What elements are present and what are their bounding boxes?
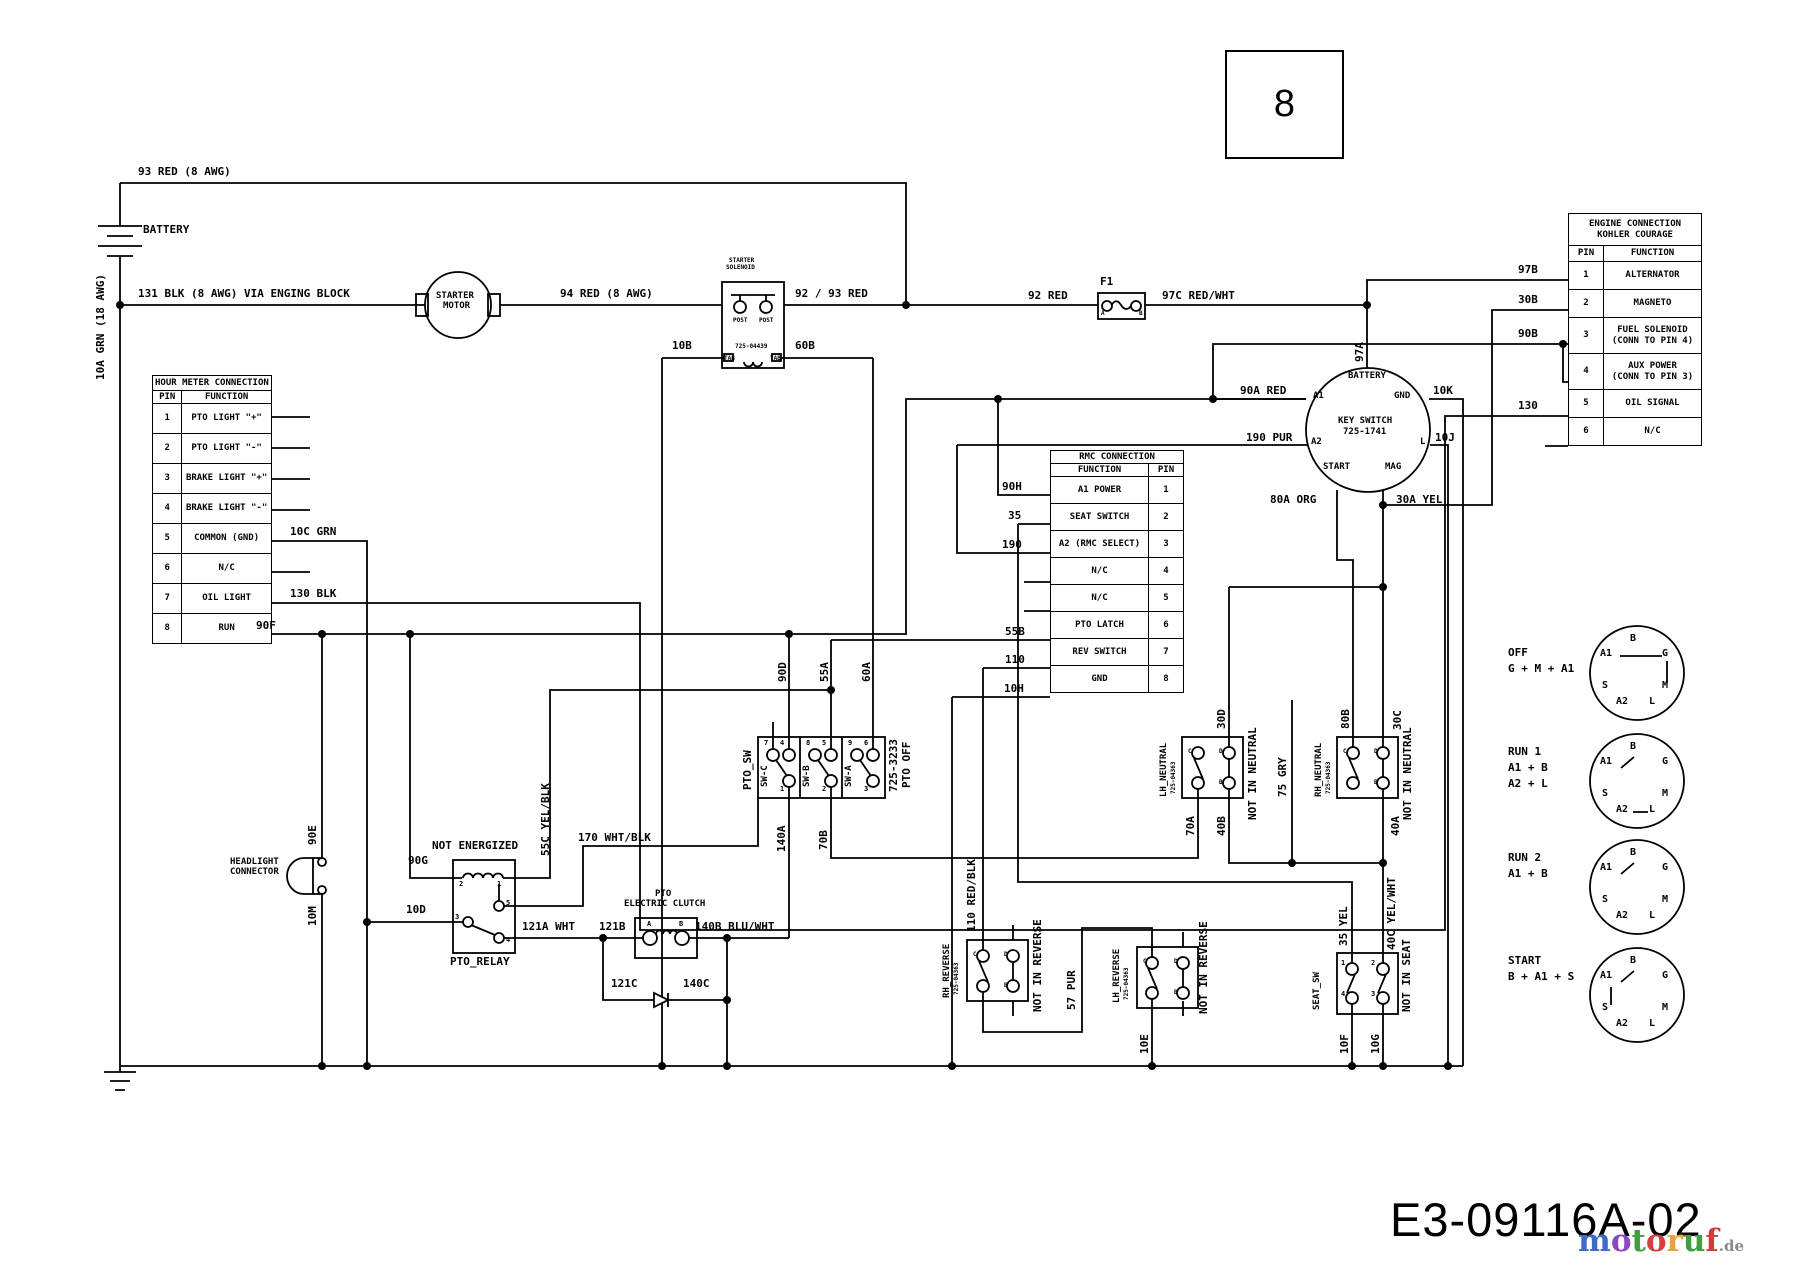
- wire-label: 10F: [1339, 1034, 1350, 1054]
- page-number-box: 8: [1225, 50, 1344, 159]
- wire-label: TAB: [724, 356, 735, 362]
- wire-label: 10K: [1433, 385, 1453, 396]
- table-title-row: HOUR METER CONNECTION: [153, 376, 272, 391]
- wire-label: POST: [759, 318, 773, 324]
- wire-label: 10M: [307, 906, 318, 926]
- table-row: 4AUX POWER(CONN TO PIN 3): [1569, 354, 1702, 390]
- wire-label: 4: [1341, 991, 1345, 998]
- wire-label: PTO OFF: [901, 742, 912, 788]
- wire-label: 8: [806, 740, 810, 747]
- wire-label: B: [1004, 983, 1008, 989]
- wire-label: BATTERY: [1348, 372, 1386, 381]
- table-row: 1PTO LIGHT "+": [153, 404, 272, 434]
- wire-label: NOT ENERGIZED: [432, 840, 518, 851]
- table-header-row: FUNCTIONPIN: [1051, 464, 1184, 477]
- wire-label: NOT IN NEUTRAL: [1247, 727, 1258, 820]
- wire-label: 190 PUR: [1246, 432, 1292, 443]
- wire-label: 5: [506, 900, 510, 907]
- key-position-terminal: S: [1602, 895, 1608, 905]
- table-row: 2MAGNETO: [1569, 290, 1702, 318]
- wire-label: 90F: [256, 620, 276, 631]
- wire-label: 92 / 93 RED: [795, 288, 868, 299]
- table-row: 5COMMON (GND): [153, 524, 272, 554]
- key-position-terminal: L: [1649, 911, 1655, 921]
- key-position-terminal: M: [1662, 1003, 1668, 1013]
- key-position-terminal: A2: [1616, 911, 1628, 921]
- wire-label: 10E: [1139, 1034, 1150, 1054]
- table-row: 1ALTERNATOR: [1569, 262, 1702, 290]
- key-position-terminal: B: [1630, 634, 1636, 644]
- wire-label: A: [1101, 311, 1105, 317]
- wire-label: 55B: [1005, 626, 1025, 637]
- wire-label: NOT IN NEUTRAL: [1402, 727, 1413, 820]
- wire-label: 131 BLK (8 AWG) VIA ENGING BLOCK: [138, 288, 350, 299]
- wire-label: 190: [1002, 539, 1022, 550]
- wire-label: MAG: [1385, 463, 1401, 472]
- wire-label: 4: [506, 937, 510, 944]
- wire-label: D: [1374, 749, 1378, 755]
- table-row: A2 (RMC SELECT)3: [1051, 531, 1184, 558]
- key-position-terminal: G: [1662, 649, 1668, 659]
- wire-label: 10J: [1435, 432, 1455, 443]
- wire-label: 725-04439: [735, 344, 768, 350]
- wire-label: LH_NEUTRAL: [1160, 743, 1169, 797]
- wire-label: 4: [780, 740, 784, 747]
- table-row: SEAT SWITCH2: [1051, 504, 1184, 531]
- key-position-terminal: S: [1602, 681, 1608, 691]
- wire-label: 7: [764, 740, 768, 747]
- wire-label: 725-3233: [888, 739, 899, 792]
- logo-letter: r: [1667, 1223, 1683, 1259]
- key-position-terminal: G: [1662, 757, 1668, 767]
- key-position-terminal: M: [1662, 895, 1668, 905]
- wire-label: B: [1139, 311, 1143, 317]
- wire-label: B: [1174, 990, 1178, 996]
- wire-label: 10A GRN (18 AWG): [95, 274, 106, 380]
- wire-label: POST: [733, 318, 747, 324]
- logo-letter: o: [1611, 1223, 1632, 1259]
- key-position-terminal: M: [1662, 789, 1668, 799]
- wires: [98, 183, 1684, 1090]
- wire-label: LH_REVERSE: [1113, 949, 1122, 1003]
- logo-letter: m: [1578, 1223, 1611, 1259]
- wire-label: F1: [1100, 276, 1113, 287]
- key-position-terminal: S: [1602, 789, 1608, 799]
- wire-label: 140C: [683, 978, 710, 989]
- wire-label: 725-04363: [1326, 761, 1332, 794]
- wire-label: 35: [1008, 510, 1021, 521]
- table-row: 4BRAKE LIGHT "-": [153, 494, 272, 524]
- wire-label: SW-B: [803, 765, 812, 787]
- table-title-row: RMC CONNECTION: [1051, 451, 1184, 464]
- wire-label: C: [1343, 749, 1347, 755]
- wire-label: 70B: [818, 830, 829, 850]
- table-row: 3BRAKE LIGHT "+": [153, 464, 272, 494]
- wire-label: 90G: [408, 855, 428, 866]
- wire-label: SEAT_SW: [1313, 972, 1322, 1010]
- table-row: 2PTO LIGHT "-": [153, 434, 272, 464]
- wire-label: 2: [459, 881, 463, 888]
- wire-label: 725-04363: [1171, 761, 1177, 794]
- wire-label: 30D: [1216, 709, 1227, 729]
- wire-label: 121B: [599, 921, 626, 932]
- wire-label: MOTOR: [443, 302, 470, 311]
- wire-label: 97B: [1518, 264, 1538, 275]
- wire-label: TAB: [770, 356, 781, 362]
- wire-label: 10B: [672, 340, 692, 351]
- wire-label: ELECTRIC CLUTCH: [624, 900, 705, 909]
- key-position-terminal: L: [1649, 697, 1655, 707]
- table-title-row: ENGINE CONNECTION KOHLER COURAGE: [1569, 214, 1702, 246]
- key-position-terminal: A1: [1600, 649, 1612, 659]
- wire-label: 80A ORG: [1270, 494, 1316, 505]
- key-position-terminal: M: [1662, 681, 1668, 691]
- wire-label: 57 PUR: [1066, 970, 1077, 1010]
- wire-label: CONNECTOR: [230, 868, 279, 877]
- wire-label: START: [1323, 463, 1350, 472]
- logo-tld: .de: [1719, 1237, 1744, 1255]
- wire-label: SW-C: [761, 765, 770, 787]
- wire-label: PTO: [655, 890, 671, 899]
- engine-connection-table: ENGINE CONNECTION KOHLER COURAGEPINFUNCT…: [1568, 213, 1702, 446]
- key-position-terminal: G: [1662, 863, 1668, 873]
- wire-label: 140B BLU/WHT: [695, 921, 774, 932]
- page-number: 8: [1274, 83, 1295, 126]
- wire-label: SW-A: [845, 765, 854, 787]
- wire-label: 725-04363: [954, 962, 960, 995]
- table-row: 3FUEL SOLENOID(CONN TO PIN 4): [1569, 318, 1702, 354]
- wire-label: 97A: [1354, 342, 1365, 362]
- wire-label: 725-04363: [1124, 967, 1130, 1000]
- rmc-connection-table: RMC CONNECTIONFUNCTIONPINA1 POWER1SEAT S…: [1050, 450, 1184, 693]
- table-row: REV SWITCH7: [1051, 639, 1184, 666]
- wire-label: 130: [1518, 400, 1538, 411]
- wire-label: 70A: [1185, 816, 1196, 836]
- wire-label: RH_REVERSE: [943, 944, 952, 998]
- wire-label: 55A: [819, 662, 830, 682]
- wire-label: 94 RED (8 AWG): [560, 288, 653, 299]
- key-position-caption: START B + A1 + S: [1508, 953, 1574, 985]
- wire-label: B: [679, 921, 683, 928]
- wire-label: 170 WHT/BLK: [578, 832, 651, 843]
- wire-label: 10G: [1370, 1034, 1381, 1054]
- logo-letter: u: [1683, 1223, 1706, 1259]
- table-row: 6N/C: [153, 554, 272, 584]
- wire-label: A1: [1313, 392, 1324, 401]
- key-position-terminal: B: [1630, 742, 1636, 752]
- wire-label: 90B: [1518, 328, 1538, 339]
- wire-label: C: [1143, 959, 1147, 965]
- wire-label: C: [1188, 749, 1192, 755]
- key-position-terminal: A1: [1600, 863, 1612, 873]
- table-row: N/C5: [1051, 585, 1184, 612]
- table-row: GND8: [1051, 666, 1184, 693]
- wire-label: 110 RED/BLK: [966, 859, 977, 932]
- wire-label: 97C RED/WHT: [1162, 290, 1235, 301]
- logo-letter: o: [1646, 1223, 1667, 1259]
- table-row: 7OIL LIGHT: [153, 584, 272, 614]
- wire-label: 1: [497, 881, 501, 888]
- wire-label: 110: [1005, 654, 1025, 665]
- logo-letter: t: [1632, 1223, 1646, 1259]
- wire-label: 30A YEL: [1396, 494, 1442, 505]
- wire-label: D: [1004, 952, 1008, 958]
- table-header-row: PINFUNCTION: [1569, 246, 1702, 262]
- wire-label: 1: [1341, 960, 1345, 967]
- wire-label: 80B: [1340, 709, 1351, 729]
- wire-label: NOT IN REVERSE: [1198, 921, 1209, 1014]
- wire-label: 40C YEL/WHT: [1386, 877, 1397, 950]
- wire-label: 725-1741: [1343, 428, 1386, 437]
- wire-label: B: [1374, 780, 1378, 786]
- table-row: A1 POWER1: [1051, 477, 1184, 504]
- wire-label: STARTER: [436, 292, 474, 301]
- table-row: 8RUN: [153, 614, 272, 644]
- wire-label: HEADLIGHT: [230, 858, 279, 867]
- key-position-terminal: S: [1602, 1003, 1608, 1013]
- wire-label: GND: [1394, 392, 1410, 401]
- key-position-terminal: A2: [1616, 1019, 1628, 1029]
- wire-label: 5: [822, 740, 826, 747]
- key-position-caption: OFF G + M + A1: [1508, 645, 1574, 677]
- wire-label: 10D: [406, 904, 426, 915]
- key-position-terminal: B: [1630, 956, 1636, 966]
- wire-label: 9: [848, 740, 852, 747]
- key-position-caption: RUN 1 A1 + B A2 + L: [1508, 744, 1548, 792]
- wire-label: 3: [864, 786, 868, 793]
- key-position-terminal: A2: [1616, 805, 1628, 815]
- key-position-terminal: G: [1662, 971, 1668, 981]
- wire-label: PTO_SW: [742, 750, 753, 790]
- table-row: 6N/C: [1569, 418, 1702, 446]
- wire-label: 2: [822, 786, 826, 793]
- wire-label: 75 GRY: [1277, 757, 1288, 797]
- wire-label: 40B: [1216, 816, 1227, 836]
- logo-letter: f: [1705, 1223, 1718, 1259]
- wire-label: 92 RED: [1028, 290, 1068, 301]
- wire-label: 90D: [777, 662, 788, 682]
- wire-label: 121A WHT: [522, 921, 575, 932]
- wire-label: 6: [864, 740, 868, 747]
- wire-label: 93 RED (8 AWG): [138, 166, 231, 177]
- wire-label: 1: [780, 786, 784, 793]
- wire-label: PTO_RELAY: [450, 956, 510, 967]
- wire-label: 30B: [1518, 294, 1538, 305]
- table-header-row: PINFUNCTION: [153, 391, 272, 404]
- key-position-terminal: A2: [1616, 697, 1628, 707]
- wire-label: 3: [1371, 991, 1375, 998]
- table-row: PTO LATCH6: [1051, 612, 1184, 639]
- wire-label: 90A RED: [1240, 385, 1286, 396]
- wire-label: L: [1420, 438, 1425, 447]
- wire-label: 55C YEL/BLK: [540, 783, 551, 856]
- key-position-terminal: L: [1649, 1019, 1655, 1029]
- wire-label: SOLENOID: [726, 265, 755, 271]
- wire-label: 60A: [861, 662, 872, 682]
- table-row: 5OIL SIGNAL: [1569, 390, 1702, 418]
- wire-label: 3: [455, 914, 459, 921]
- wire-label: D: [1174, 959, 1178, 965]
- hour-meter-connection-table: HOUR METER CONNECTIONPINFUNCTION1PTO LIG…: [152, 375, 272, 644]
- wire-label: A2: [1311, 438, 1322, 447]
- wire-label: BATTERY: [143, 224, 189, 235]
- wire-label: 10H: [1004, 683, 1024, 694]
- wire-label: 10C GRN: [290, 526, 336, 537]
- wire-label: 121C: [611, 978, 638, 989]
- wire-label: D: [1219, 749, 1223, 755]
- key-position-caption: RUN 2 A1 + B: [1508, 850, 1548, 882]
- key-position-terminal: A1: [1600, 757, 1612, 767]
- key-position-terminal: B: [1630, 848, 1636, 858]
- wire-label: 35 YEL: [1338, 906, 1349, 946]
- wire-label: 60B: [795, 340, 815, 351]
- motoruf-logo: motoruf.de: [1578, 1226, 1744, 1257]
- wire-label: 90E: [307, 825, 318, 845]
- wire-label: A: [647, 921, 651, 928]
- wire-label: C: [973, 952, 977, 958]
- wire-label: KEY SWITCH: [1338, 417, 1392, 426]
- key-position-terminal: L: [1649, 805, 1655, 815]
- wire-label: 130 BLK: [290, 588, 336, 599]
- wiring-diagram-canvas: 8 HOUR METER CONNECTIONPINFUNCTION1PTO L…: [0, 0, 1800, 1272]
- wire-label: 2: [1371, 960, 1375, 967]
- wire-label: B: [1219, 780, 1223, 786]
- wire-label: RH_NEUTRAL: [1315, 743, 1324, 797]
- wire-label: NOT IN SEAT: [1401, 939, 1412, 1012]
- wire-label: 90H: [1002, 481, 1022, 492]
- wire-label: 140A: [776, 826, 787, 853]
- table-row: N/C4: [1051, 558, 1184, 585]
- wire-label: 40A: [1390, 816, 1401, 836]
- wire-label: NOT IN REVERSE: [1032, 919, 1043, 1012]
- key-position-terminal: A1: [1600, 971, 1612, 981]
